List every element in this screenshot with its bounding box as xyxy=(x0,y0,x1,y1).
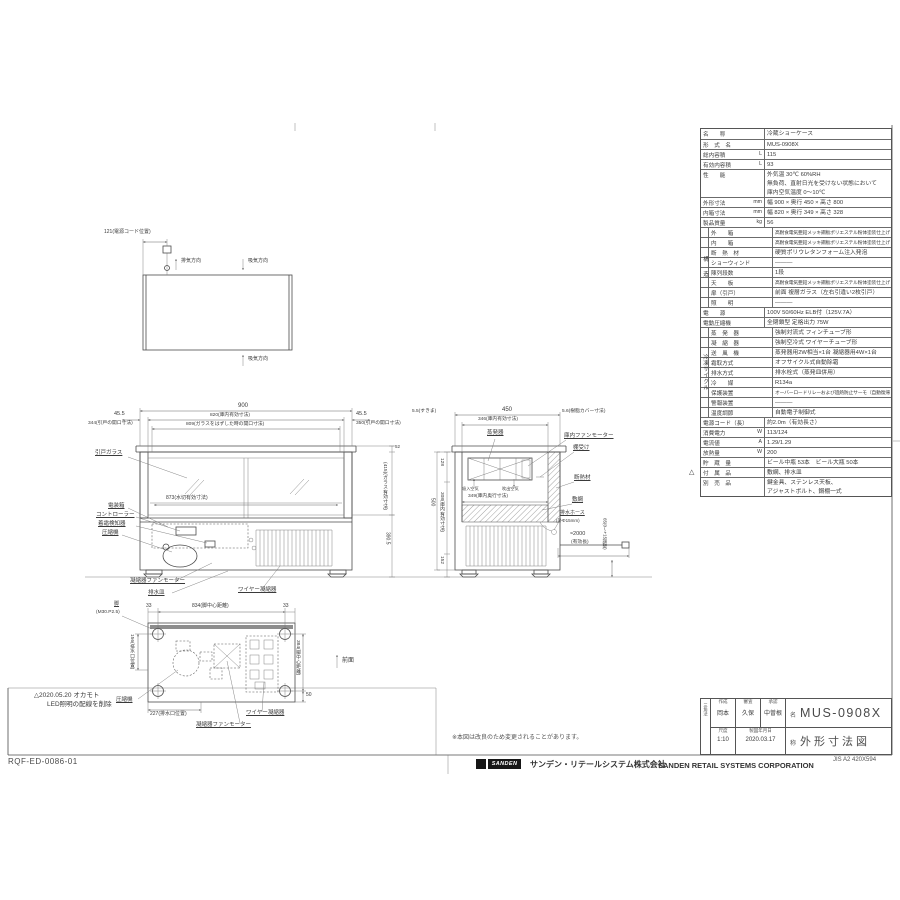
model-key-label: 名 xyxy=(790,710,796,719)
spec-label-cell: 保護装置 xyxy=(709,388,773,397)
spec-value: 115 xyxy=(765,150,891,159)
revision-note-line2: LED照明の配線を削除 xyxy=(47,702,112,709)
spec-value: 排水栓式（蒸発皿併用） xyxy=(773,368,891,377)
spec-label: 電源コード（長） xyxy=(703,419,748,427)
spec-value: 硬質ポリウレタンフォーム注入発泡 xyxy=(773,248,891,257)
spec-row: 消費電力W 113/124 xyxy=(701,427,891,437)
spec-value: 200 xyxy=(765,448,891,457)
spec-label-cell: 電源コード（長） xyxy=(701,418,765,427)
dim-opening-809: 809(ガラスをはずした時の開口寸法) xyxy=(186,422,264,427)
spec-label-cell: 電動圧縮機 xyxy=(701,318,765,327)
spec-label-cell: 照 明 xyxy=(709,298,773,307)
spec-label: 扉（引戸） xyxy=(711,289,739,297)
spec-row: 蒸 発 器 強制対流式 フィンチューブ形 xyxy=(701,327,891,337)
label-mat: 敷網 xyxy=(572,498,583,504)
spec-group-refrigeration: 冷凍サイクル xyxy=(701,328,710,416)
spec-label: 外形寸法 xyxy=(703,199,725,207)
spec-label: 天 板 xyxy=(711,279,733,287)
spec-label-cell: 総内容積L xyxy=(701,150,765,159)
date-value: 2020.03.17 xyxy=(736,737,785,743)
spec-row: 電動圧縮機 全閉鎖型 定格出力 75W xyxy=(701,317,891,327)
spec-row: 貯 蔵 量 ビール中瓶 53本 ビール大瓶 50本 xyxy=(701,457,891,467)
dim-834: 834(脚中心距離) xyxy=(192,604,229,609)
spec-unit: kg xyxy=(757,219,762,225)
approved-value: 中曽根 xyxy=(761,708,785,717)
spec-label-cell: 貯 蔵 量 xyxy=(701,458,765,467)
spec-unit: mm xyxy=(753,199,762,205)
drawing-sheet: 121(電源コード位置) 排気方向 吸気方向 吸気方向 900 820(庫内有効… xyxy=(0,0,900,900)
spec-label-cell: 凝 縮 器 xyxy=(709,338,773,347)
spec-label: 付 属 品 xyxy=(703,469,731,477)
spec-label-cell: 排水方式 xyxy=(709,368,773,377)
company-name-jp: サンデン・リテールシステム株式会社 xyxy=(530,761,666,769)
label-frost-detector: 着霜検知器 xyxy=(98,522,126,528)
label-leg: 脚 xyxy=(114,602,119,607)
spec-label: 消費電力 xyxy=(703,429,725,437)
spec-label: 放熱量 xyxy=(703,449,720,457)
label-intake-direction-top: 吸気方向 xyxy=(248,259,268,264)
spec-row: 扉（引戸） 前面 複層ガラス（左右引違い2枚引戸） xyxy=(701,287,891,297)
date-label: 製図年月日 xyxy=(736,728,785,734)
dim-152: 152 xyxy=(439,556,444,564)
label-condenser-fan-front: 凝縮器ファンモーター xyxy=(130,579,185,585)
label-blow-air: 吹出空気 xyxy=(502,487,519,491)
dim-drip-873: 873(水切有効寸法) xyxy=(166,496,208,501)
spec-row: 別 売 品 鍵金具、ステンレス天板、 アジャストボルト、鋼棚一式 xyxy=(701,477,891,496)
revision-mark: △ xyxy=(689,469,694,476)
dim-cord-position: 121(電源コード位置) xyxy=(104,230,151,235)
title-key-label: 称 xyxy=(790,738,796,747)
spec-label: 名 称 xyxy=(703,130,725,138)
spec-value: 高耐食電気亜鉛メッキ鋼板ポリエステル粉体塗装仕上げ xyxy=(773,238,891,247)
spec-row: 外 箱 高耐食電気亜鉛メッキ鋼板ポリエステル粉体塗装仕上げ xyxy=(701,227,891,237)
label-wire-condenser-plan: ワイヤー凝縮器 xyxy=(246,711,284,717)
dim-cord-effective: (有効長) xyxy=(571,540,589,545)
date-cell: 製図年月日 2020.03.17 xyxy=(736,727,786,754)
spec-row: 霜取方式 オフサイクル式自動除霜 xyxy=(701,357,891,367)
spec-label: 有効内容積 xyxy=(703,161,731,169)
spec-label-cell: 天 板 xyxy=(709,278,773,287)
spec-label-cell: 名 称 xyxy=(701,129,765,139)
spec-value: 1.29/1.29 xyxy=(765,438,891,447)
spec-row: 名 称 冷蔵ショーケース xyxy=(701,129,891,139)
spec-row: 総内容積L 115 xyxy=(701,149,891,159)
dim-308: 308(庫内有効寸法) xyxy=(439,492,444,532)
spec-label: 電流値 xyxy=(703,439,720,447)
spec-value: 幅 900 × 奥行 450 × 高さ 800 xyxy=(765,198,891,207)
label-evaporator: 蒸発器 xyxy=(487,431,504,437)
checked-label: 審査 xyxy=(736,699,760,705)
spec-label: 断 熱 材 xyxy=(711,249,739,257)
spec-row: 製品質量kg 56 xyxy=(701,217,891,227)
spec-unit: L xyxy=(759,151,762,157)
spec-label-cell: 霜取方式 xyxy=(709,358,773,367)
spec-group-structure: 構 造 xyxy=(701,228,710,306)
drawing-title-cell: 称 外形寸法図 xyxy=(786,727,891,754)
spec-label: 外 箱 xyxy=(711,229,733,237)
spec-label: 警報装置 xyxy=(711,399,733,407)
spec-row: 警報装置 ――― xyxy=(701,397,891,407)
bottom-view-linework xyxy=(122,608,337,723)
scale-cell: 尺度 1:10 xyxy=(711,727,736,754)
spec-unit: W xyxy=(757,449,762,455)
projection-label: 三角法 xyxy=(703,703,709,716)
label-condenser-fan-plan: 凝縮器ファンモーター xyxy=(196,723,251,729)
spec-value: 敷網、排水皿 xyxy=(765,468,891,477)
spec-label: 電動圧縮機 xyxy=(703,319,731,327)
spec-label: 凝 縮 器 xyxy=(711,339,739,347)
spec-label-cell: 電 源 xyxy=(701,308,765,317)
label-shelf-support: 棚受け xyxy=(573,446,590,452)
dim-width-900: 900 xyxy=(238,403,248,409)
spec-value: 113/124 xyxy=(765,428,891,437)
spec-label: 内 箱 xyxy=(711,239,733,247)
dim-500: 500 xyxy=(429,498,434,506)
label-drain-hose-size: (外Φ15mm) xyxy=(556,519,580,524)
spec-label: 蒸 発 器 xyxy=(711,329,739,337)
spec-label-cell: 有効内容積L xyxy=(701,160,765,169)
spec-label: 製品質量 xyxy=(703,219,725,227)
sanden-logo-icon: SANDEN xyxy=(488,759,521,769)
spec-row: 外形寸法mm 幅 900 × 奥行 450 × 高さ 800 xyxy=(701,197,891,207)
spec-value: 高耐食電気亜鉛メッキ鋼板ポリエステル粉体塗装仕上げ xyxy=(773,228,891,237)
dim-left-offset: 45.5 xyxy=(114,412,125,418)
spec-value: 100V 50/60Hz ELB付（125V.7A） xyxy=(765,308,891,317)
spec-label: 温度調節 xyxy=(711,409,733,417)
dim-right-offset: 45.5 xyxy=(356,412,367,418)
dim-gap-left: 5.5(すきま) xyxy=(412,409,436,414)
label-insulation: 断熱材 xyxy=(574,476,591,482)
label-suction-air: 吸入空気 xyxy=(462,487,479,491)
approved-label: 承認 xyxy=(761,699,785,705)
dim-inner-820: 820(庫内有効寸法) xyxy=(210,413,250,418)
label-compressor-plan: 圧縮機 xyxy=(116,698,133,704)
spec-value: 全閉鎖型 定格出力 75W xyxy=(765,318,891,327)
spec-row: 排水方式 排水栓式（蒸発皿併用） xyxy=(701,367,891,377)
created-label: 作成 xyxy=(711,699,735,705)
spec-label-cell: 警報装置 xyxy=(709,398,773,407)
model-name: MUS-0908X xyxy=(800,706,882,720)
spec-value: オーバーロードリレーおよび過熱防止サーモ（自動復帰型） xyxy=(773,388,891,397)
spec-label-cell: 付 属 品 xyxy=(701,468,765,477)
spec-value: 蒸発器用2W相当×1台 凝縮器用4W×1台 xyxy=(773,348,891,357)
spec-row: 温度調節 自動電子制御式 xyxy=(701,407,891,417)
dim-33-left: 33 xyxy=(146,604,152,609)
projection-cell: 三角法 xyxy=(701,699,711,754)
dim-left-opening: 344(引戸の開口寸法) xyxy=(88,421,133,426)
spec-row: 保護装置 オーバーロードリレーおよび過熱防止サーモ（自動復帰型） xyxy=(701,387,891,397)
spec-value: R134a xyxy=(773,378,891,387)
dim-inner-346: 346(庫内有効寸法) xyxy=(478,417,518,422)
label-exhaust-direction: 排気方向 xyxy=(181,259,201,264)
spec-label-cell: ショーウィンド xyxy=(709,258,773,267)
dim-128: 128 xyxy=(439,458,444,466)
spec-label-cell: 冷 媒 xyxy=(709,378,773,387)
checked-cell: 審査 久保 xyxy=(736,699,761,727)
spec-label: 保護装置 xyxy=(711,389,733,397)
dim-227: 227(排水口位置) xyxy=(150,712,187,717)
spec-value: 前面 複層ガラス（左右引違い2枚引戸） xyxy=(773,288,891,297)
top-view-linework xyxy=(143,239,292,366)
spec-label-cell: 別 売 品 xyxy=(701,478,765,496)
sanden-logo-mark xyxy=(476,759,486,769)
spec-label-cell: 消費電力W xyxy=(701,428,765,437)
dim-height-52: 52 xyxy=(395,445,400,450)
label-intake-direction-bottom: 吸気方向 xyxy=(248,357,268,362)
scale-label: 尺度 xyxy=(711,728,735,734)
spec-label: 内箱寸法 xyxy=(703,209,725,217)
spec-value: ――― xyxy=(773,258,891,267)
spec-value: MUS-0908X xyxy=(765,140,891,149)
paper-size: JIS A2 420X594 xyxy=(833,757,876,763)
spec-value: ――― xyxy=(773,398,891,407)
scale-value: 1:10 xyxy=(711,737,735,743)
spec-label: 性 能 xyxy=(703,171,725,179)
dim-156: 156(排水口位置) xyxy=(129,634,134,669)
dim-384: 384(脚中心距離) xyxy=(295,640,300,675)
spec-label-cell: 温度調節 xyxy=(709,408,773,417)
spec-table: 名 称 冷蔵ショーケース 形 式 名 MUS-0908X 総内容積L 115 有… xyxy=(700,128,892,497)
spec-row: 電流値A 1.29/1.29 xyxy=(701,437,891,447)
spec-value: 冷蔵ショーケース xyxy=(765,129,891,139)
dim-adjuster: 65(0〜+15調整) xyxy=(602,518,607,550)
label-sliding-glass: 引戸ガラス xyxy=(95,451,122,457)
spec-row: 電源コード（長） 約2.0m（有効長さ） xyxy=(701,417,891,427)
front-view-linework xyxy=(122,408,395,593)
spec-row: 凝 縮 器 強制空冷式 ワイヤーチューブ形 xyxy=(701,337,891,347)
spec-value: 高耐食電気亜鉛メッキ鋼板ポリエステル粉体塗装仕上げ xyxy=(773,278,891,287)
spec-label-cell: 内箱寸法mm xyxy=(701,208,765,217)
spec-label-cell: 外 箱 xyxy=(709,228,773,237)
label-interior-fan: 庫内ファンモーター xyxy=(564,434,614,440)
spec-row: 陳列段数 1段 xyxy=(701,267,891,277)
spec-row: 形 式 名 MUS-0908X xyxy=(701,139,891,149)
spec-unit: A xyxy=(759,439,762,445)
spec-value: 自動電子制御式 xyxy=(773,408,891,417)
spec-value: 93 xyxy=(765,160,891,169)
dim-cord-2000: ≈2000 xyxy=(570,532,585,538)
spec-row: 有効内容積L 93 xyxy=(701,159,891,169)
spec-value: 外気温 30℃ 60%RH 無負荷、直射日光を受けない状態において 庫内空気温度… xyxy=(765,170,891,197)
label-leg-thread: (M30.P2.5) xyxy=(96,610,120,615)
spec-value: 強制対流式 フィンチューブ形 xyxy=(773,328,891,337)
spec-row: 冷 媒 R134a xyxy=(701,377,891,387)
company-name-en: SANDEN RETAIL SYSTEMS CORPORATION xyxy=(658,762,814,770)
label-wire-condenser-front: ワイヤー凝縮器 xyxy=(238,588,276,594)
created-value: 岡本 xyxy=(711,708,735,717)
spec-label-cell: 形 式 名 xyxy=(701,140,765,149)
dim-depth-450: 450 xyxy=(502,407,512,413)
spec-label-cell: 扉（引戸） xyxy=(709,288,773,297)
revision-note-line1: △2020.05.20 オカモト xyxy=(34,693,99,700)
spec-label: 総内容積 xyxy=(703,151,725,159)
label-drain-pan: 排水皿 xyxy=(148,591,165,597)
spec-label: 排水方式 xyxy=(711,369,733,377)
dim-height-390: 390.5 xyxy=(384,532,389,545)
spec-value: オフサイクル式自動除霜 xyxy=(773,358,891,367)
spec-label-cell: 製品質量kg xyxy=(701,218,765,227)
model-cell: 名 MUS-0908X xyxy=(786,699,891,727)
label-front-direction: 前面 xyxy=(342,658,354,664)
approved-cell: 承認 中曽根 xyxy=(761,699,786,727)
spec-value: 鍵金具、ステンレス天板、 アジャストボルト、鋼棚一式 xyxy=(765,478,891,496)
spec-label: 照 明 xyxy=(711,299,733,307)
spec-row: 照 明 ――― xyxy=(701,297,891,307)
spec-value: 1段 xyxy=(773,268,891,277)
spec-label: 霜取方式 xyxy=(711,359,733,367)
created-cell: 作成 岡本 xyxy=(711,699,736,727)
spec-value: 強制空冷式 ワイヤーチューブ形 xyxy=(773,338,891,347)
spec-label-cell: 電流値A xyxy=(701,438,765,447)
spec-label: 別 売 品 xyxy=(703,479,731,487)
dim-cover: 5.6(樹脂カバー寸法) xyxy=(562,409,605,414)
drawing-title: 外形寸法図 xyxy=(800,733,870,749)
spec-value: 幅 820 × 奥行 349 × 高さ 328 xyxy=(765,208,891,217)
spec-value: 約2.0m（有効長さ） xyxy=(765,418,891,427)
spec-label-cell: 性 能 xyxy=(701,170,765,197)
dim-height-415: (415)(ガラス有効寸法) xyxy=(382,462,387,510)
spec-label: 貯 蔵 量 xyxy=(703,459,731,467)
spec-row: ショーウィンド ――― xyxy=(701,257,891,267)
spec-value: 56 xyxy=(765,218,891,227)
spec-row: 送 風 機 蒸発器用2W相当×1台 凝縮器用4W×1台 xyxy=(701,347,891,357)
spec-label: 送 風 機 xyxy=(711,349,739,357)
spec-value: ――― xyxy=(773,298,891,307)
dim-right-opening: 350(引戸の開口寸法) xyxy=(356,421,401,426)
spec-label-cell: 送 風 機 xyxy=(709,348,773,357)
checked-value: 久保 xyxy=(736,708,760,717)
spec-label: 冷 媒 xyxy=(711,379,733,387)
spec-unit: mm xyxy=(753,209,762,215)
spec-label-cell: 内 箱 xyxy=(709,238,773,247)
spec-label: 形 式 名 xyxy=(703,141,731,149)
label-drain-hose: 排水ホース xyxy=(560,511,585,516)
spec-row: 性 能 外気温 30℃ 60%RH 無負荷、直射日光を受けない状態において 庫内… xyxy=(701,169,891,197)
spec-label: 陳列段数 xyxy=(711,269,733,277)
spec-row: 内 箱 高耐食電気亜鉛メッキ鋼板ポリエステル粉体塗装仕上げ xyxy=(701,237,891,247)
dim-50: 50 xyxy=(306,693,312,698)
label-controller: コントローラー xyxy=(96,513,135,519)
spec-row: 電 源 100V 50/60Hz ELB付（125V.7A） xyxy=(701,307,891,317)
spec-value: ビール中瓶 53本 ビール大瓶 50本 xyxy=(765,458,891,467)
label-compressor-front: 圧縮機 xyxy=(102,531,119,537)
spec-unit: L xyxy=(759,161,762,167)
dim-inner-depth-349: 349(庫内奥行寸法) xyxy=(468,494,508,499)
spec-label-cell: 蒸 発 器 xyxy=(709,328,773,337)
spec-label: 電 源 xyxy=(703,309,725,317)
spec-label: ショーウィンド xyxy=(711,259,750,267)
spec-unit: W xyxy=(757,429,762,435)
spec-row: 天 板 高耐食電気亜鉛メッキ鋼板ポリエステル粉体塗装仕上げ xyxy=(701,277,891,287)
drawing-number: RQF-ED-0086-01 xyxy=(8,758,78,766)
change-note: ※本図は改良のため変更されることがあります。 xyxy=(452,735,582,741)
title-block: 三角法 作成 岡本 審査 久保 承認 中曽根 尺度 1:10 製図年月日 202… xyxy=(700,698,892,755)
spec-row: 付 属 品 敷網、排水皿 xyxy=(701,467,891,477)
dim-33-right: 33 xyxy=(283,604,289,609)
spec-label-cell: 外形寸法mm xyxy=(701,198,765,207)
spec-label-cell: 陳列段数 xyxy=(709,268,773,277)
spec-row: 断 熱 材 硬質ポリウレタンフォーム注入発泡 xyxy=(701,247,891,257)
spec-row: 放熱量W 200 xyxy=(701,447,891,457)
spec-row: 内箱寸法mm 幅 820 × 奥行 349 × 高さ 328 xyxy=(701,207,891,217)
spec-label-cell: 断 熱 材 xyxy=(709,248,773,257)
label-electrical-box: 電装箱 xyxy=(108,504,125,510)
spec-label-cell: 放熱量W xyxy=(701,448,765,457)
